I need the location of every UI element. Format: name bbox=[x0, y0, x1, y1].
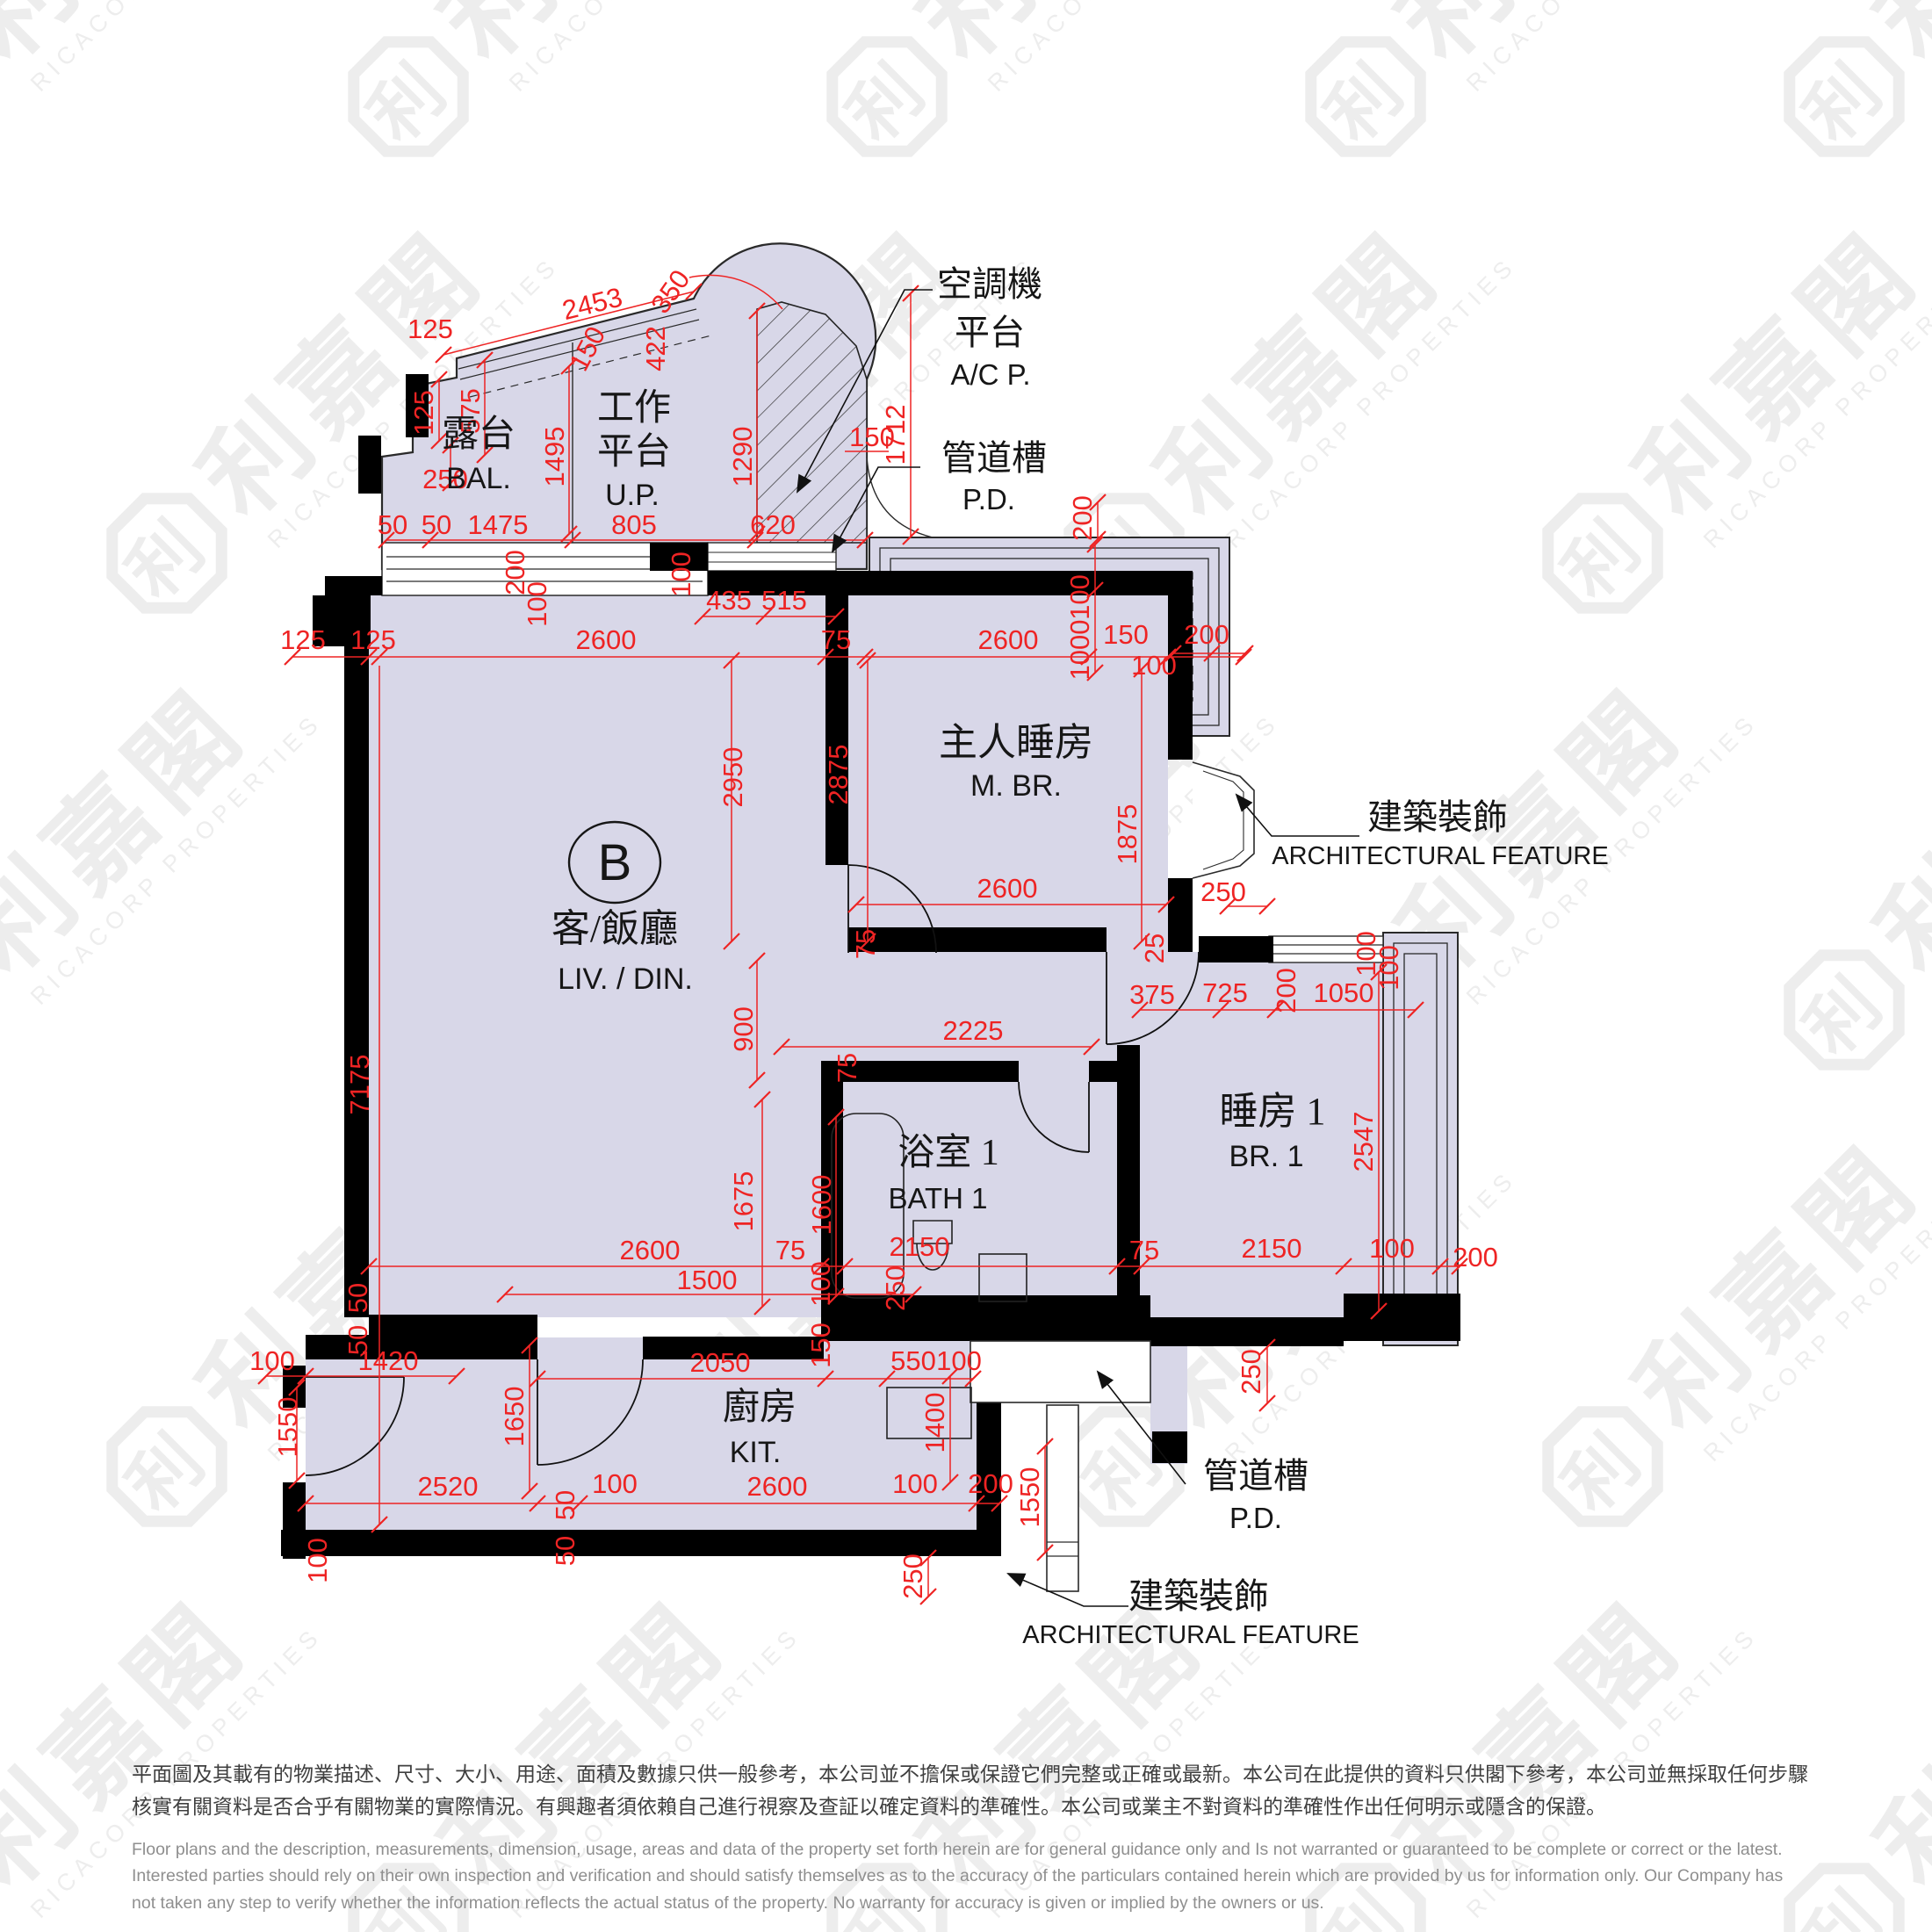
dimension-label: 550 bbox=[890, 1345, 936, 1376]
dimension-label: 375 bbox=[1129, 979, 1175, 1010]
dimension-label: 150 bbox=[805, 1323, 836, 1368]
room-label-bathroom-1: 浴室 1 bbox=[898, 1132, 999, 1173]
room-label-utility-platform: 工作 bbox=[597, 388, 671, 429]
watermark-logo: 利嘉閣RICACORP PROPERTIES利 bbox=[328, 0, 806, 192]
dimension-label: 200 bbox=[1067, 495, 1098, 541]
dimension-label: 1400 bbox=[919, 1393, 950, 1453]
annotation-pipe-duct-top: 管道槽 bbox=[941, 438, 1047, 478]
room-label-balcony: 露台 bbox=[442, 415, 515, 455]
dimension-label: 25 bbox=[1139, 934, 1170, 963]
watermark-logo: 利嘉閣RICACORP PROPERTIES利 bbox=[0, 628, 328, 1106]
dimension-label: 422 bbox=[640, 326, 671, 371]
dimension-label: 100 bbox=[302, 1538, 333, 1583]
dimension-label: 1712 bbox=[880, 405, 911, 465]
dimension-label: 100 bbox=[936, 1345, 982, 1376]
room-label-kitchen: KIT. bbox=[730, 1436, 782, 1469]
dimension-label: 620 bbox=[750, 509, 796, 540]
dimension-label: 50 bbox=[422, 509, 451, 540]
dimension-label: 2150 bbox=[890, 1231, 950, 1262]
dimension-label: 435 bbox=[706, 585, 752, 616]
dimension-label: 1290 bbox=[727, 427, 758, 487]
dimension-label: 75 bbox=[850, 929, 881, 959]
dimension-label: 2600 bbox=[620, 1235, 681, 1265]
dimension-label: 100 bbox=[1064, 574, 1095, 620]
dimension-label: 250 bbox=[1200, 876, 1246, 907]
room-label-utility-platform: U.P. bbox=[605, 479, 660, 512]
dimension-label: 2225 bbox=[943, 1015, 1004, 1046]
room-label-living-dining: LIV. / DIN. bbox=[558, 962, 693, 996]
dimension-label: 200 bbox=[1271, 968, 1301, 1013]
dimension-label: 75 bbox=[832, 1053, 862, 1083]
dimension-label: 2050 bbox=[690, 1347, 751, 1378]
dimension-label: 100 bbox=[1369, 1233, 1415, 1264]
floorplan-drawing: 利嘉閣RICACORP PROPERTIES利利嘉閣RICACORP PROPE… bbox=[0, 0, 1932, 1932]
dimension-label: 2600 bbox=[576, 624, 637, 655]
architectural-feature-shape-right bbox=[1193, 762, 1254, 878]
annotation-architectural-feature-right: ARCHITECTURAL FEATURE bbox=[1272, 842, 1608, 870]
dimension-label: 100 bbox=[666, 551, 696, 597]
annotation-architectural-feature-right: 建築裝飾 bbox=[1367, 797, 1508, 837]
dimension-label: 50 bbox=[342, 1283, 373, 1313]
annotation-pipe-duct-top: P.D. bbox=[962, 483, 1015, 515]
dimension-label: 1600 bbox=[806, 1175, 837, 1236]
dimension-label: 2547 bbox=[1348, 1112, 1379, 1172]
dimension-label: 1675 bbox=[728, 1171, 759, 1232]
dimension-label: 250 bbox=[898, 1554, 928, 1599]
dimension-label: 100 bbox=[1131, 650, 1177, 681]
annotation-architectural-feature-bottom: ARCHITECTURAL FEATURE bbox=[1022, 1621, 1359, 1649]
dimension-label: 250 bbox=[1236, 1349, 1266, 1395]
room-label-kitchen: 廚房 bbox=[723, 1387, 797, 1428]
dimension-label: 2600 bbox=[977, 873, 1038, 904]
room-label-bathroom-1: BATH 1 bbox=[888, 1182, 987, 1215]
dimension-label: 1420 bbox=[358, 1345, 419, 1376]
dimension-label: 100 bbox=[592, 1468, 638, 1499]
dimension-label: 1550 bbox=[272, 1397, 303, 1458]
dimension-label: 2150 bbox=[1242, 1233, 1302, 1264]
dimension-label: 125 bbox=[408, 390, 439, 436]
dimension-label: 1500 bbox=[677, 1265, 738, 1295]
dimension-label: 1050 bbox=[1314, 977, 1374, 1008]
annotation-pipe-duct-bottom: 管道槽 bbox=[1203, 1456, 1308, 1496]
main-body bbox=[369, 595, 1168, 1317]
dimension-label: 2600 bbox=[747, 1471, 808, 1502]
dimension-label: 100 bbox=[522, 581, 552, 627]
watermark-logo: 利嘉閣RICACORP PROPERTIES利 bbox=[1764, 0, 1932, 192]
disclaimer-zh: 平面圖及其載有的物業描述、尺寸、大小、用途、面積及數據只供一般參考，本公司並不擔… bbox=[132, 1758, 1811, 1824]
dimension-label: 200 bbox=[1453, 1242, 1498, 1272]
dimension-label: 150 bbox=[1103, 619, 1149, 650]
dimension-label: 200 bbox=[968, 1468, 1013, 1499]
room-label-bedroom-1: 睡房 1 bbox=[1220, 1090, 1326, 1133]
floorplan-page: 利嘉閣RICACORP PROPERTIES利利嘉閣RICACORP PROPE… bbox=[0, 0, 1932, 1932]
dimension-label: 50 bbox=[550, 1536, 580, 1566]
annotation-architectural-feature-bottom: 建築裝飾 bbox=[1128, 1576, 1269, 1616]
annotation-ac-platform: 空調機 bbox=[937, 264, 1042, 304]
dimension-label: 75 bbox=[775, 1235, 805, 1265]
dimension-label: 50 bbox=[378, 509, 407, 540]
dimension-label: 75 bbox=[1129, 1235, 1159, 1265]
watermark-text-zh: 利嘉閣 bbox=[1857, 1581, 1932, 1908]
annotation-ac-platform: A/C P. bbox=[950, 358, 1030, 391]
dimension-label: 1000 bbox=[1064, 620, 1095, 681]
dimension-label: 125 bbox=[407, 314, 453, 344]
dimension-label: 100 bbox=[892, 1468, 938, 1499]
dimension-label: 1650 bbox=[499, 1387, 530, 1447]
dimension-label: 2520 bbox=[418, 1471, 479, 1502]
watermark-logo: 利嘉閣RICACORP PROPERTIES利 bbox=[1764, 628, 1932, 1106]
dimension-label: 200 bbox=[1184, 619, 1229, 650]
dimension-label: 100 bbox=[249, 1345, 295, 1376]
dimension-label: 805 bbox=[611, 509, 657, 540]
watermark-logo: 利嘉閣RICACORP PROPERTIES利 bbox=[1286, 0, 1763, 192]
dimension-label: 515 bbox=[761, 585, 807, 616]
dimension-label: 2600 bbox=[978, 624, 1039, 655]
room-label-master-bedroom: 主人睡房 bbox=[939, 721, 1093, 764]
dimension-label: 100 bbox=[805, 1261, 836, 1307]
annotation-pipe-duct-bottom: P.D. bbox=[1229, 1502, 1282, 1534]
watermark-logo: 利嘉閣RICACORP PROPERTIES利 bbox=[0, 0, 328, 192]
dimension-label: 7175 bbox=[344, 1055, 375, 1115]
dimension-label: 250 bbox=[880, 1265, 911, 1311]
dimension-label: 100 bbox=[1373, 945, 1404, 991]
room-label-balcony: BAL. bbox=[446, 462, 511, 495]
dimension-label: 2950 bbox=[717, 747, 748, 808]
dimension-label: 900 bbox=[728, 1006, 759, 1052]
watermark-logo: 利嘉閣RICACORP PROPERTIES利 bbox=[807, 0, 1285, 192]
watermark-text-zh: 利嘉閣 bbox=[0, 667, 270, 995]
room-label-utility-platform: 平台 bbox=[597, 432, 671, 472]
annotation-ac-platform: 平台 bbox=[955, 313, 1025, 352]
room-label-living-dining: 客/飯廳 bbox=[551, 907, 678, 950]
dimension-label: 75 bbox=[821, 624, 851, 655]
pipe-duct-box-bottom bbox=[970, 1341, 1150, 1402]
room-label-bedroom-1: BR. 1 bbox=[1229, 1140, 1303, 1173]
dimension-label: 50 bbox=[550, 1490, 580, 1520]
disclaimer: 平面圖及其載有的物業描述、尺寸、大小、用途、面積及數據只供一般參考，本公司並不擔… bbox=[132, 1758, 1811, 1917]
dimension-label: 2875 bbox=[823, 745, 854, 805]
architectural-feature-shape-bottom bbox=[1047, 1405, 1078, 1591]
dimension-label: 1875 bbox=[1112, 804, 1143, 865]
room-label-master-bedroom: M. BR. bbox=[970, 769, 1062, 803]
watermark-text-zh: 利嘉閣 bbox=[1857, 667, 1932, 995]
disclaimer-en: Floor plans and the description, measure… bbox=[132, 1836, 1811, 1917]
dimension-label: 1475 bbox=[468, 509, 529, 540]
watermark-logo: 利嘉閣RICACORP PROPERTIES利 bbox=[1523, 171, 1932, 649]
dimension-label: 125 bbox=[350, 624, 396, 655]
dimension-label: 1550 bbox=[1014, 1467, 1045, 1528]
dimension-label: 125 bbox=[280, 624, 326, 655]
unit-label: B bbox=[598, 834, 632, 891]
dimension-label: 1495 bbox=[539, 427, 570, 487]
watermark-logo: 利嘉閣RICACORP PROPERTIES利 bbox=[1523, 1085, 1932, 1562]
dimension-label: 725 bbox=[1202, 977, 1248, 1008]
